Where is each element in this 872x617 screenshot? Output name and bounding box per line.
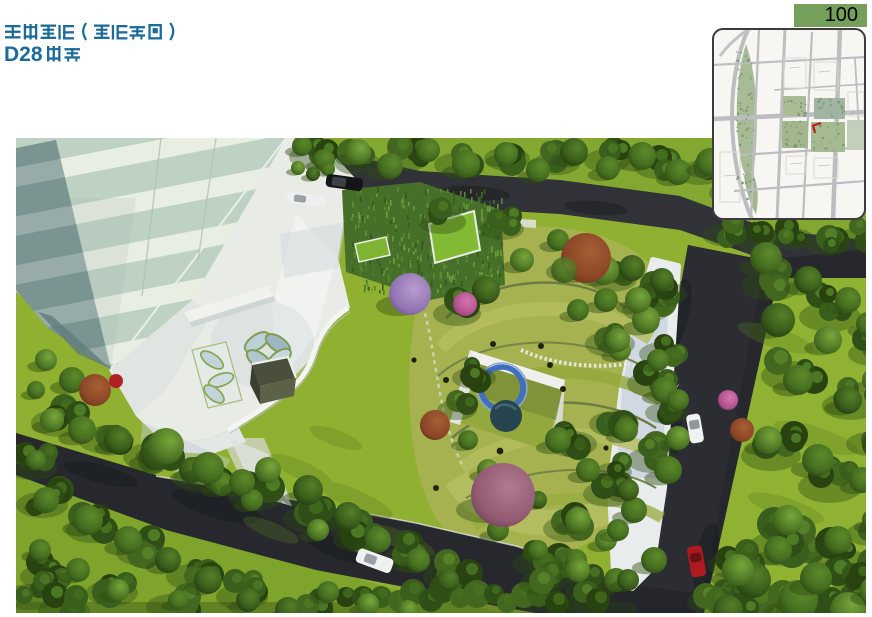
svg-text:D28: D28 xyxy=(5,43,43,66)
